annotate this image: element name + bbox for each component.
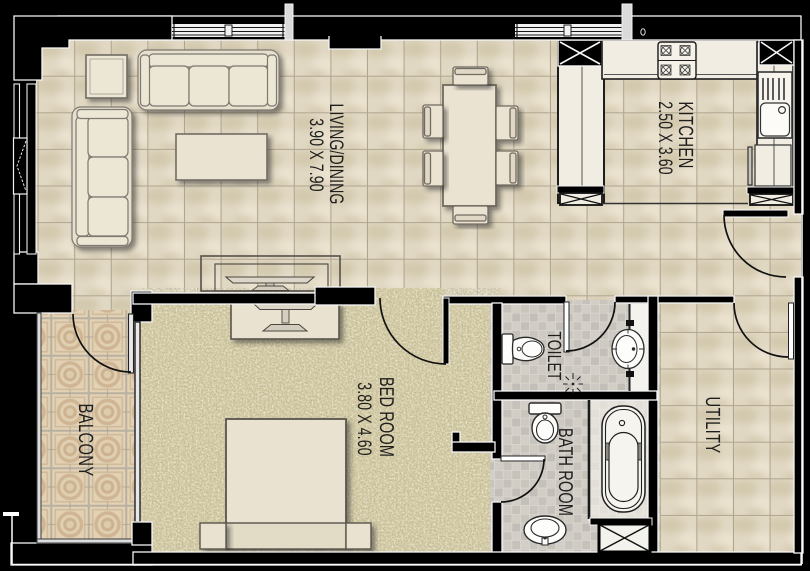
svg-text:UTILITY: UTILITY: [701, 397, 724, 454]
svg-text:2.50 X 3.60: 2.50 X 3.60: [654, 101, 676, 174]
svg-text:BATH ROOM: BATH ROOM: [554, 428, 576, 516]
svg-text:BED ROOM: BED ROOM: [375, 377, 397, 457]
svg-text:3.80 X 4.60: 3.80 X 4.60: [353, 382, 375, 455]
svg-text:KITCHEN: KITCHEN: [674, 101, 697, 168]
svg-text:BALCONY: BALCONY: [74, 403, 97, 476]
svg-text:TOILET: TOILET: [543, 331, 564, 380]
svg-text:3.90 X 7.90: 3.90 X 7.90: [305, 118, 327, 191]
svg-text:LIVING/DINING: LIVING/DINING: [325, 104, 347, 205]
